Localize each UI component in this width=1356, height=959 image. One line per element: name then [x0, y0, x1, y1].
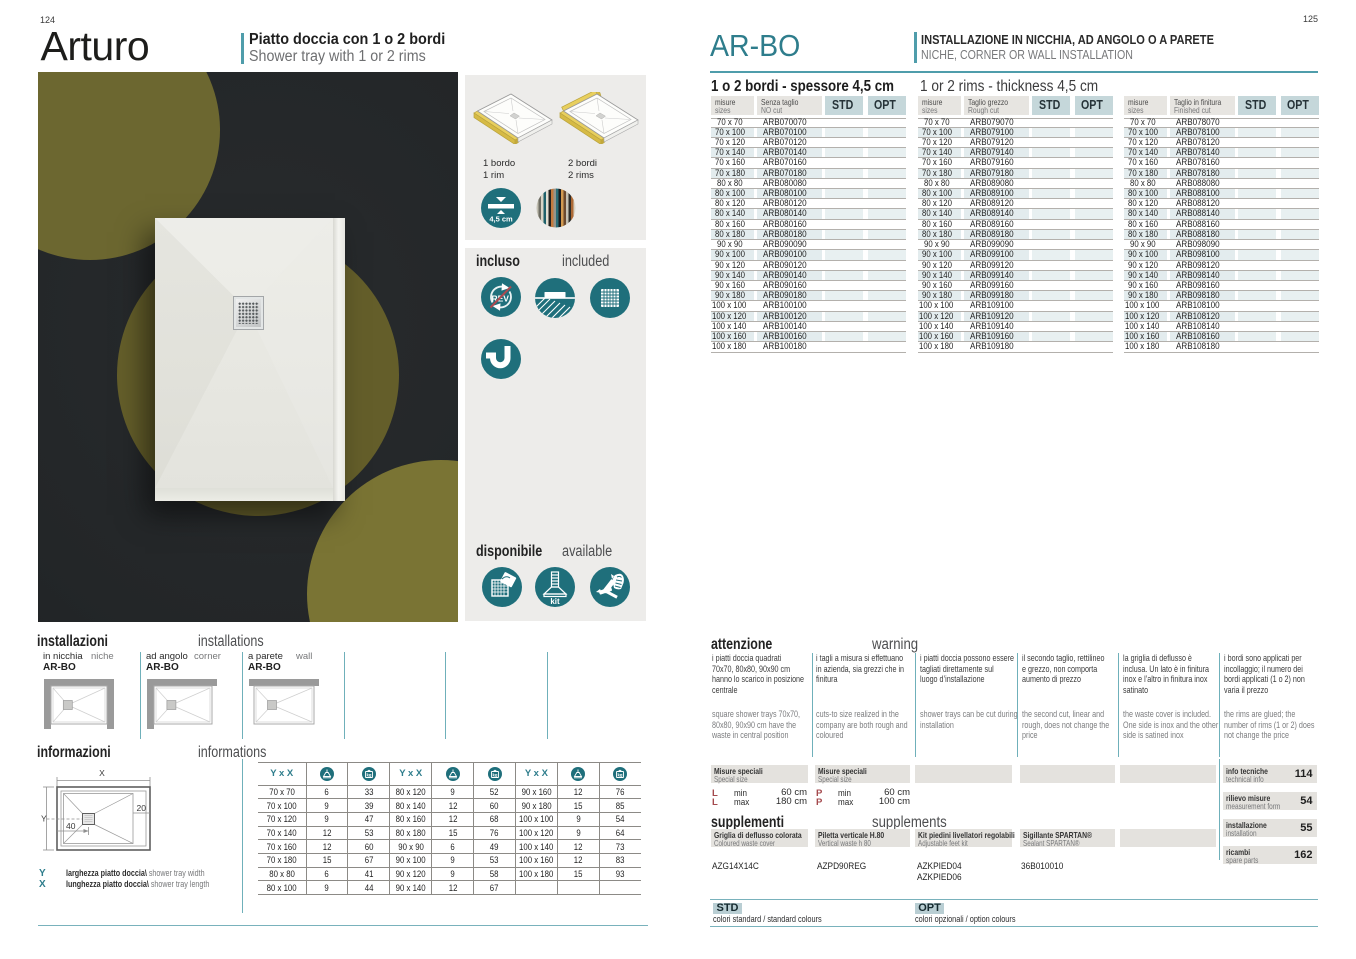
svg-text:Y: Y	[41, 814, 47, 824]
svg-text:20: 20	[137, 803, 147, 813]
svg-text:40: 40	[66, 821, 76, 831]
svg-text:4,5 cm: 4,5 cm	[489, 215, 513, 224]
svg-text:kg: kg	[492, 772, 497, 777]
svg-text:kg: kg	[618, 772, 623, 777]
svg-text:kit: kit	[550, 597, 560, 606]
svg-text:X: X	[99, 768, 105, 778]
svg-text:kg: kg	[366, 772, 371, 777]
